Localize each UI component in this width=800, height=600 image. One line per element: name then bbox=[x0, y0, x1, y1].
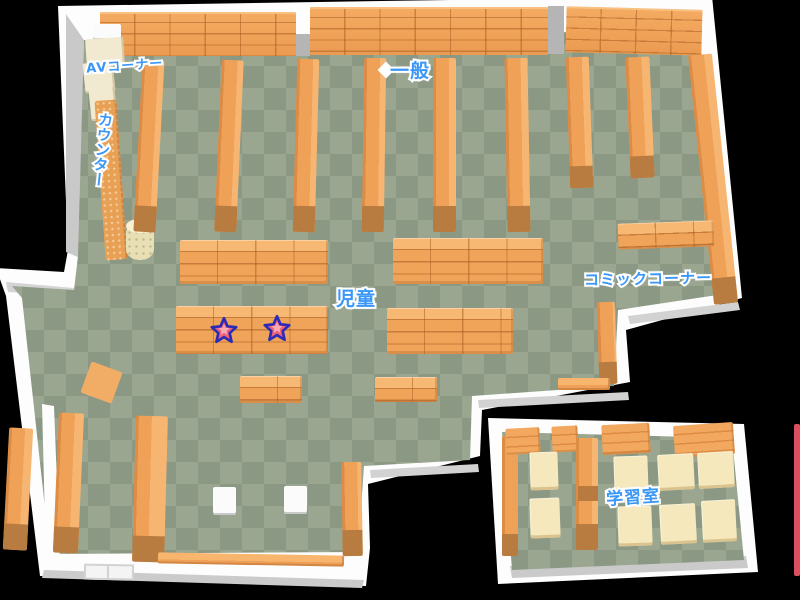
study-desk bbox=[657, 453, 695, 491]
aisle-bookshelf bbox=[293, 59, 320, 233]
area-label-children: 児童 bbox=[336, 284, 376, 311]
wall-bookshelf-row bbox=[100, 12, 296, 56]
reading-table bbox=[284, 486, 307, 512]
children-bench bbox=[240, 376, 302, 403]
study-desk bbox=[529, 497, 560, 538]
entrance-door[interactable] bbox=[84, 564, 134, 581]
study-desk bbox=[617, 505, 652, 546]
area-label-general: 一般 bbox=[390, 56, 430, 83]
aisle-bookshelf bbox=[504, 58, 530, 232]
children-low-shelf bbox=[393, 238, 543, 284]
children-low-shelf bbox=[387, 308, 513, 354]
lower-bookshelf bbox=[132, 416, 168, 563]
wall-bookshelf-row bbox=[310, 7, 548, 55]
children-low-shelf bbox=[176, 306, 328, 354]
area-label-study-room: 学習室 bbox=[605, 481, 661, 510]
aisle-bookshelf bbox=[433, 58, 456, 232]
study-desk bbox=[659, 503, 697, 545]
children-low-shelf bbox=[180, 240, 328, 284]
study-desk bbox=[697, 451, 735, 489]
map-edge-accent bbox=[794, 424, 800, 576]
av-equipment-box bbox=[93, 24, 121, 38]
comic-shelf bbox=[597, 302, 618, 385]
reading-table bbox=[213, 487, 236, 513]
wall-pillar bbox=[296, 34, 310, 56]
wall-pillar bbox=[548, 6, 564, 54]
children-bench bbox=[375, 377, 437, 402]
lower-bookshelf bbox=[341, 462, 363, 556]
comic-shelf bbox=[618, 220, 715, 249]
star-marker[interactable] bbox=[210, 316, 238, 344]
comic-shelf bbox=[558, 378, 610, 390]
aisle-bookshelf bbox=[362, 58, 386, 232]
study-desk bbox=[529, 452, 558, 491]
study-shelf bbox=[601, 423, 651, 455]
lobby-bookshelf bbox=[3, 427, 33, 550]
study-shelf bbox=[505, 427, 540, 455]
study-divider-gap bbox=[578, 486, 598, 501]
aisle-bookshelf bbox=[566, 57, 594, 189]
library-floor-map: AVコーナー 一般 カウンター 児童 コミックコーナー 学習室 bbox=[0, 0, 800, 600]
wall-bookshelf-row bbox=[565, 6, 702, 56]
star-marker[interactable] bbox=[263, 314, 291, 342]
study-desk bbox=[701, 499, 737, 543]
area-label-comic-corner: コミックコーナー bbox=[584, 267, 712, 290]
study-shelf bbox=[551, 425, 578, 452]
